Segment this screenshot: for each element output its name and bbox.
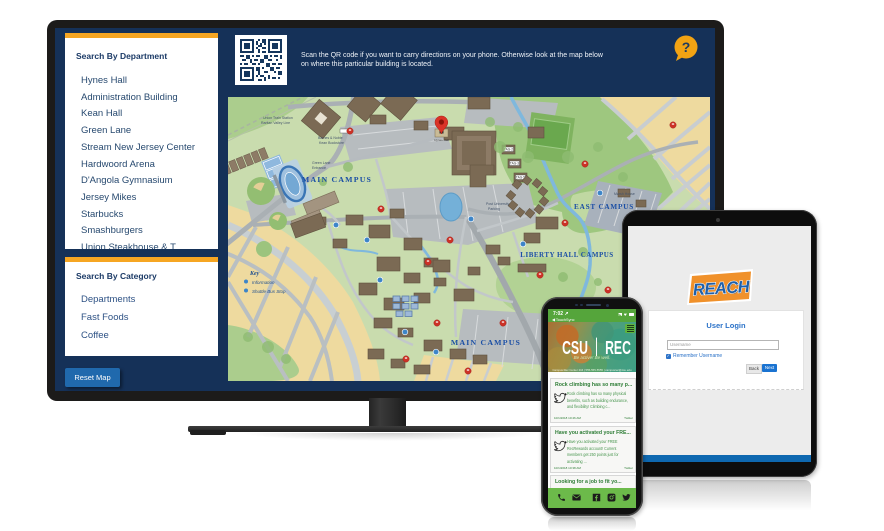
svg-text:Shuttle Bus Stop: Shuttle Bus Stop xyxy=(252,289,286,294)
svg-text:EAST CAMPUS: EAST CAMPUS xyxy=(574,203,634,211)
svg-text:MAIN CAMPUS: MAIN CAMPUS xyxy=(302,175,372,184)
svg-text:Raritan Valley Line: Raritan Valley Line xyxy=(261,121,290,125)
svg-text:Green Lane: Green Lane xyxy=(312,161,331,165)
svg-text:Marsh House: Marsh House xyxy=(614,192,635,196)
svg-text:Barnes & Noble: Barnes & Noble xyxy=(318,136,343,140)
svg-text:Entrance: Entrance xyxy=(312,166,326,170)
svg-text:Hynes Hall: Hynes Hall xyxy=(434,138,449,142)
svg-text:LIBERTY HALL CAMPUS: LIBERTY HALL CAMPUS xyxy=(520,251,613,259)
svg-text:Parking: Parking xyxy=(488,207,500,211)
svg-text:TAG-3: TAG-3 xyxy=(510,162,519,166)
svg-text:Post University: Post University xyxy=(486,202,510,206)
svg-text:Kean Bookstore: Kean Bookstore xyxy=(319,141,344,145)
svg-text:MAIN CAMPUS: MAIN CAMPUS xyxy=(451,338,521,347)
svg-text:?: ? xyxy=(682,39,691,55)
svg-text:Information: Information xyxy=(252,280,275,285)
svg-text:REACH: REACH xyxy=(692,278,751,299)
svg-text:Key: Key xyxy=(249,271,260,277)
svg-text:Union Train Station: Union Train Station xyxy=(263,116,293,120)
